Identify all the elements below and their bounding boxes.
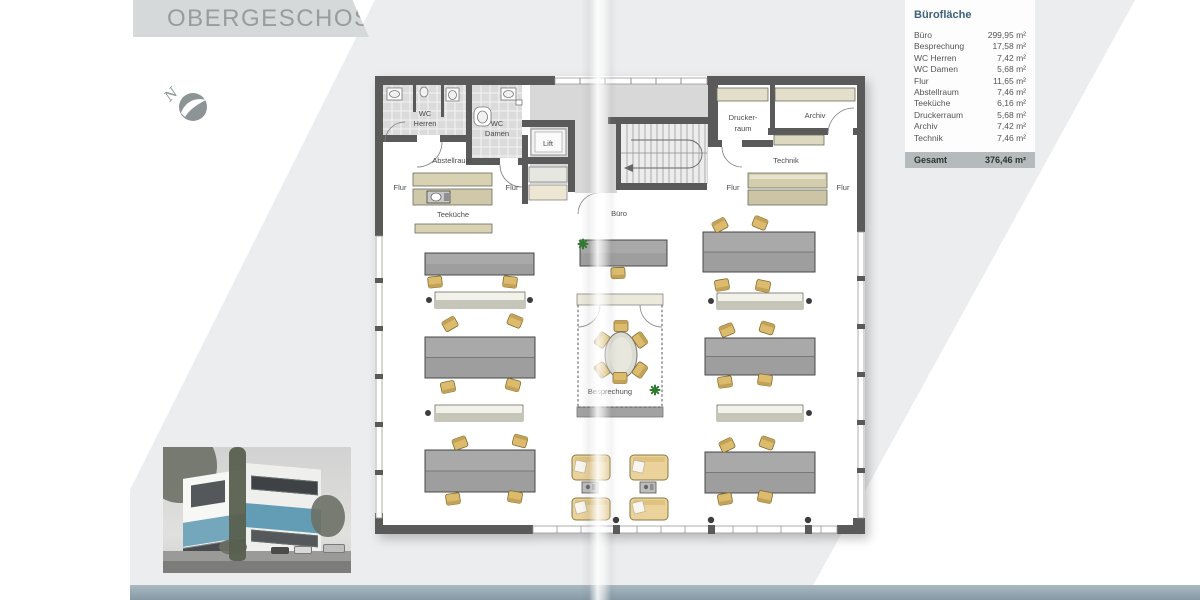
- building-right-face: [245, 463, 321, 558]
- desk: [703, 232, 815, 272]
- legend-total-bar: Gesamt 376,46 m²: [905, 152, 1035, 168]
- tree: [311, 495, 345, 537]
- shaft-cabinet: [529, 167, 567, 182]
- floor-plan: WC Herren WC Damen Lift Abstellraum Flur…: [375, 68, 865, 535]
- desk: [425, 253, 534, 275]
- car: [294, 546, 312, 554]
- page-title: OBERGESCHOSS: [167, 0, 389, 37]
- compass-north-label: N: [161, 84, 182, 105]
- label-flur: Flur: [837, 183, 850, 192]
- legend-row: Besprechung17,58 m²: [914, 41, 1026, 52]
- label-flur: Flur: [727, 183, 740, 192]
- desk: [705, 452, 815, 493]
- brochure-page: OBERGESCHOSS N Bürofläche Büro299,95 m² …: [0, 0, 1200, 600]
- footer-color-band: [130, 585, 1200, 600]
- legend-row: WC Damen5,68 m²: [914, 64, 1026, 75]
- label-buero: Büro: [611, 209, 627, 218]
- legend-total-label: Gesamt: [914, 155, 947, 165]
- car: [323, 544, 345, 553]
- legend-row: Büro299,95 m²: [914, 30, 1026, 41]
- label-flur: Flur: [506, 183, 519, 192]
- conifer-tree: [229, 447, 246, 561]
- desk: [425, 450, 535, 492]
- svg-text:raum: raum: [734, 124, 751, 133]
- kitchen-counter: [413, 173, 492, 233]
- label-technik: Technik: [773, 156, 799, 165]
- title-band: OBERGESCHOSS: [133, 0, 369, 37]
- label-druckerraum: Drucker-: [729, 113, 758, 122]
- staircase: [621, 124, 707, 183]
- label-wc-damen: WC: [491, 119, 504, 128]
- legend-total-value: 376,46 m²: [985, 155, 1026, 165]
- legend-row: Flur11,65 m²: [914, 76, 1026, 87]
- label-wc-herren: WC: [419, 109, 432, 118]
- area-legend-panel: Bürofläche Büro299,95 m² Besprechung17,5…: [905, 0, 1035, 152]
- north-compass-icon: N: [156, 76, 218, 128]
- legend-row: Druckerraum5,68 m²: [914, 110, 1026, 121]
- legend-row: Teeküche6,16 m²: [914, 98, 1026, 109]
- legend-row: Technik7,46 m²: [914, 133, 1026, 144]
- desk: [705, 338, 815, 375]
- label-abstellraum: Abstellraum: [432, 156, 472, 165]
- desk: [425, 337, 535, 378]
- shaft-cabinet: [529, 185, 567, 200]
- label-lift: Lift: [543, 139, 554, 148]
- legend-row: Archiv7,42 m²: [914, 121, 1026, 132]
- car: [271, 547, 289, 554]
- svg-text:Damen: Damen: [485, 129, 509, 138]
- desk: [580, 240, 667, 266]
- building-photo: [163, 447, 351, 573]
- legend-row: Abstellraum7,46 m²: [914, 87, 1026, 98]
- legend-row: WC Herren7,42 m²: [914, 53, 1026, 64]
- legend-title: Bürofläche: [914, 9, 1026, 21]
- svg-text:Herren: Herren: [414, 119, 437, 128]
- label-besprechung: Besprechung: [588, 387, 632, 396]
- label-flur: Flur: [394, 183, 407, 192]
- label-teekueche: Teeküche: [437, 210, 469, 219]
- label-archiv: Archiv: [805, 111, 826, 120]
